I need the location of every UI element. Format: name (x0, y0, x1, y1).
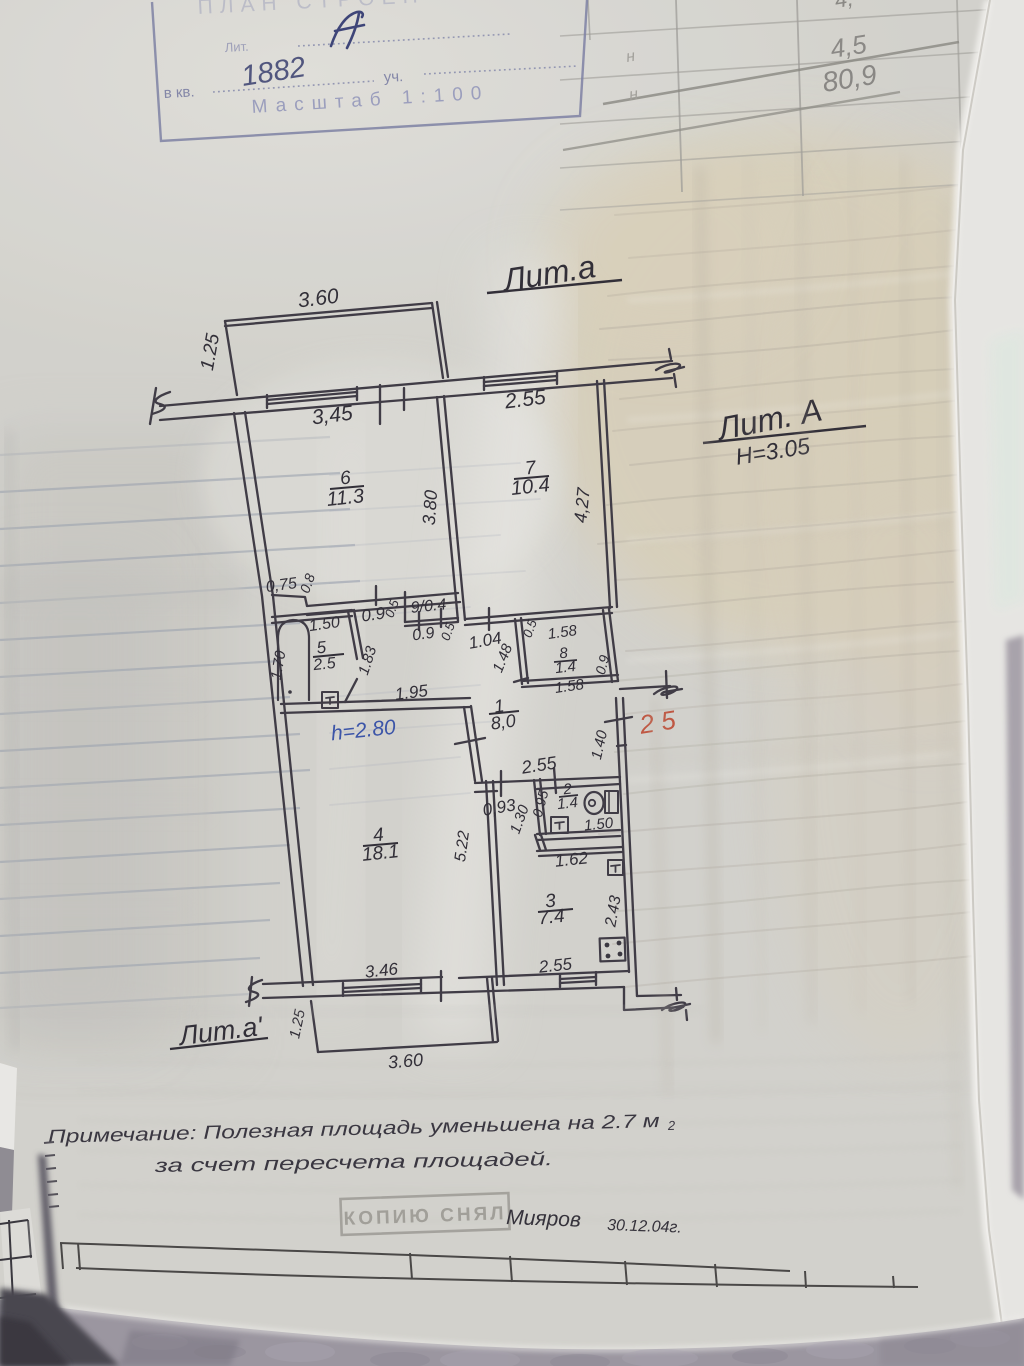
svg-text:0.9: 0.9 (411, 625, 435, 645)
svg-text:18.1: 18.1 (361, 841, 400, 866)
svg-text:1.95: 1.95 (394, 681, 430, 704)
svg-text:в кв.: в кв. (163, 83, 195, 102)
svg-text:3.60: 3.60 (387, 1050, 424, 1073)
svg-text:4,27: 4,27 (570, 486, 594, 524)
svg-text:3.80: 3.80 (419, 489, 441, 525)
svg-text:1.4: 1.4 (554, 658, 577, 677)
svg-text:Мияров: Мияров (506, 1206, 582, 1232)
svg-text:4,5: 4,5 (828, 29, 869, 64)
svg-text:2.55: 2.55 (537, 954, 573, 977)
svg-text:8,0: 8,0 (489, 710, 517, 733)
svg-text:2: 2 (667, 1118, 676, 1133)
svg-text:Лит.: Лит. (224, 39, 249, 55)
svg-text:10.4: 10.4 (510, 474, 551, 500)
svg-text:7.4: 7.4 (537, 906, 565, 930)
svg-text:11.3: 11.3 (326, 485, 366, 511)
svg-text:2.5: 2.5 (312, 655, 337, 674)
svg-text:1.62: 1.62 (554, 848, 589, 870)
svg-text:уч.: уч. (383, 68, 403, 86)
svg-text:1.50: 1.50 (583, 814, 614, 834)
svg-text:30.12.04г.: 30.12.04г. (607, 1217, 682, 1237)
svg-text:3.46: 3.46 (364, 959, 399, 981)
svg-text:1.4: 1.4 (556, 794, 579, 813)
